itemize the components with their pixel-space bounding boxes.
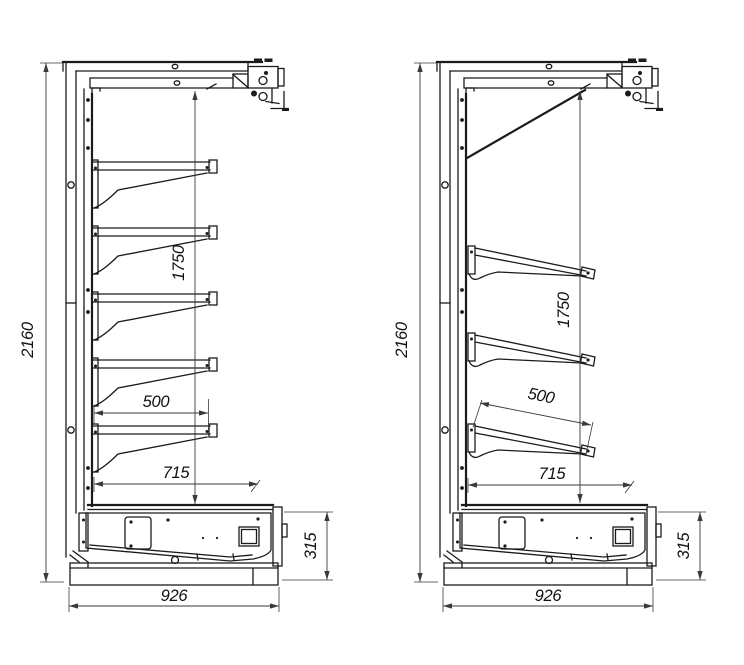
right-base xyxy=(444,505,661,585)
dim-deck-depth: 715 xyxy=(94,464,260,492)
dim-label-shelf-depth-left: 500 xyxy=(143,393,171,411)
drawing-canvas: 2160 1750 500 715 315 xyxy=(0,0,744,665)
right-shelf-bracket-2 xyxy=(468,333,595,366)
dim-overall-depth: 926 xyxy=(69,587,279,612)
dim-label-inner-height-left: 1750 xyxy=(170,244,188,281)
left-shelf-bracket-2 xyxy=(92,226,217,274)
left-canopy xyxy=(63,59,289,112)
left-view: 2160 1750 500 715 315 xyxy=(19,59,333,613)
dim-label-overall-height-left: 2160 xyxy=(19,321,37,359)
right-view: 2160 1750 500 715 315 xyxy=(393,59,706,613)
right-post xyxy=(440,63,466,557)
dim-label-shelf-depth-right: 500 xyxy=(526,385,557,408)
right-shelf-bracket-3 xyxy=(468,424,595,457)
night-blind-line xyxy=(467,90,585,158)
dim-overall-height: 2160 xyxy=(393,63,438,582)
left-shelf-bracket-5 xyxy=(92,424,217,472)
dim-label-overall-height-right: 2160 xyxy=(393,321,411,359)
dim-label-overall-depth-right: 926 xyxy=(535,587,563,605)
dim-deck-depth: 715 xyxy=(468,465,634,493)
left-shelf-bracket-3 xyxy=(92,292,217,340)
right-shelf-bracket-1 xyxy=(468,246,595,279)
left-post xyxy=(66,63,92,557)
dim-shelf-depth: 500 xyxy=(94,393,209,430)
dim-base-height: 315 xyxy=(656,512,706,580)
dim-label-base-height-left: 315 xyxy=(302,532,320,560)
right-canopy xyxy=(437,59,663,112)
dim-overall-depth: 926 xyxy=(443,587,653,612)
dim-label-inner-height-right: 1750 xyxy=(555,291,573,328)
dim-label-deck-depth-left: 715 xyxy=(163,464,191,482)
technical-drawing-svg: 2160 1750 500 715 315 xyxy=(0,0,744,665)
left-shelf-bracket-1 xyxy=(92,160,217,208)
dim-label-base-height-right: 315 xyxy=(675,532,693,560)
dim-label-overall-depth-left: 926 xyxy=(161,587,189,605)
dim-label-deck-depth-right: 715 xyxy=(539,465,567,483)
dim-overall-height: 2160 xyxy=(19,63,64,582)
dim-inner-height: 1750 xyxy=(555,91,580,503)
left-base xyxy=(70,505,287,585)
dim-base-height: 315 xyxy=(282,512,333,580)
